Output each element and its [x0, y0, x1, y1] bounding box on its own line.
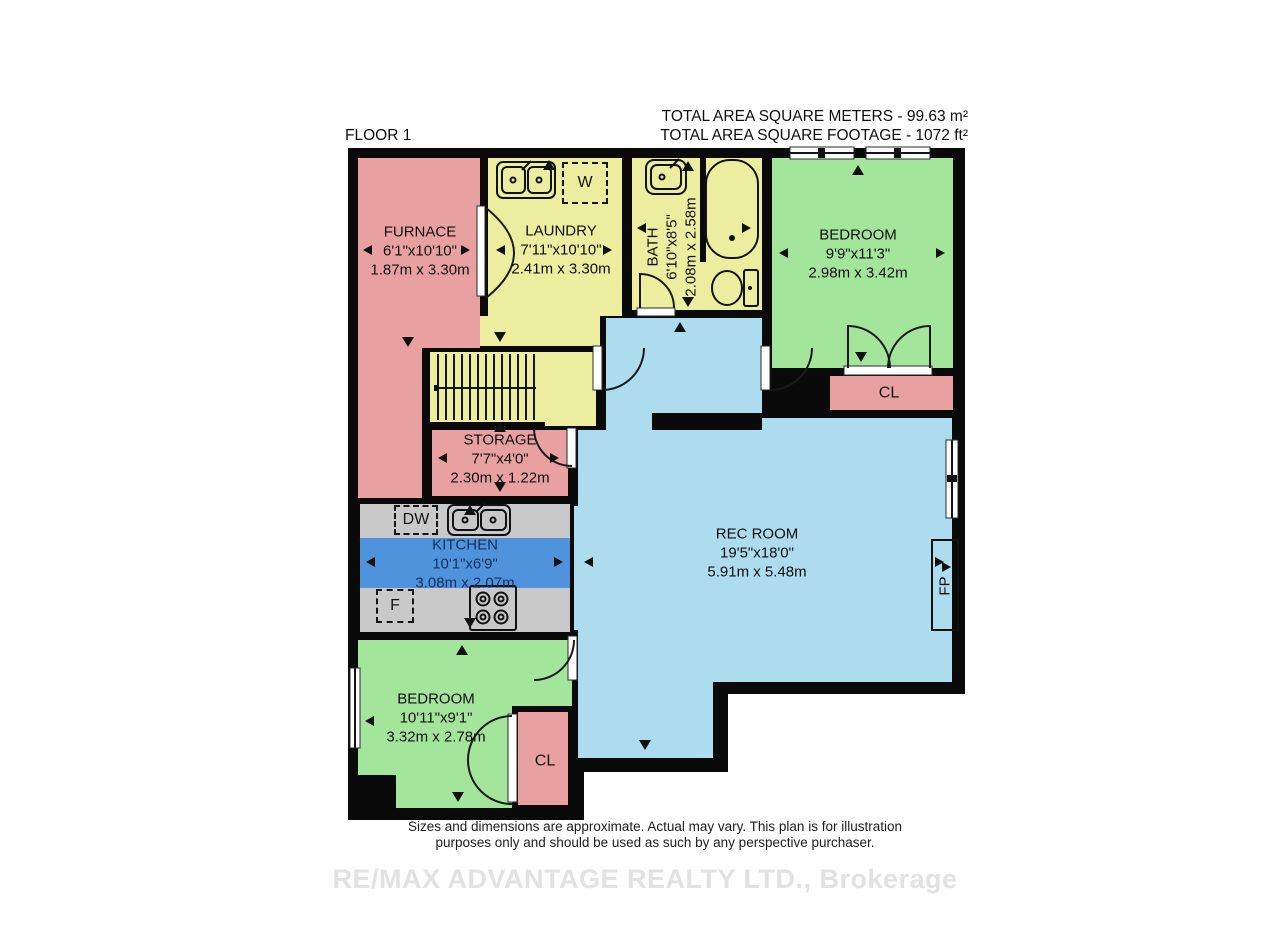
rec-room-dims-m: 5.91m x 5.48m	[707, 563, 806, 582]
bath-name: BATH	[644, 197, 663, 296]
disclaimer-line-1: Sizes and dimensions are approximate. Ac…	[355, 819, 955, 834]
rec-hall-door-leaf	[593, 346, 602, 390]
furnace-room-fill-lower	[358, 348, 422, 498]
furnace-dims-m: 1.87m x 3.30m	[370, 261, 469, 280]
furnace-name: FURNACE	[370, 223, 469, 242]
laundry-label: LAUNDRY 7'11"x10'10" 2.41m x 3.30m	[511, 222, 610, 279]
bedroom-upper-dims-m: 2.98m x 3.42m	[808, 264, 907, 283]
closet-upper-label: CL	[879, 384, 899, 403]
brokerage-watermark: RE/MAX ADVANTAGE REALTY LTD., Brokerage	[332, 864, 957, 895]
bath-threshold	[637, 308, 675, 316]
laundry-dims-m: 2.41m x 3.30m	[511, 260, 610, 279]
storage-dims-ft: 7'7"x4'0"	[450, 450, 549, 469]
kitchen-label: KITCHEN 10'1"x6'9" 3.08m x 2.07m	[415, 536, 514, 593]
bedroom-upper-door-leaf	[761, 346, 770, 390]
furnace-label: FURNACE 6'1"x10'10" 1.87m x 3.30m	[370, 223, 469, 280]
closet-lower-label: CL	[535, 752, 555, 771]
bedroom-upper-label: BEDROOM 9'9"x11'3" 2.98m x 3.42m	[808, 226, 907, 283]
furnace-door-leaf	[477, 206, 485, 296]
bath-dims-m: 2.08m x 2.58m	[682, 197, 701, 296]
storage-name: STORAGE	[450, 431, 549, 450]
floorplan-page: FLOOR 1 TOTAL AREA SQUARE METERS - 99.63…	[0, 0, 1280, 943]
rec-room-hall-fill	[606, 318, 762, 413]
bedroom-lower-notch	[358, 775, 396, 808]
stair-landing-fill	[480, 316, 600, 346]
rec-room-name: REC ROOM	[707, 525, 806, 544]
closet-lower-door-leaf	[508, 714, 517, 802]
bedroom-lower-dims-ft: 10'11"x9'1"	[386, 709, 485, 728]
furnace-dims-ft: 6'1"x10'10"	[370, 242, 469, 261]
laundry-name: LAUNDRY	[511, 222, 610, 241]
kitchen-dims-ft: 10'1"x6'9"	[415, 555, 514, 574]
bedroom-lower-name: BEDROOM	[386, 690, 485, 709]
bath-dims-ft: 6'10"x8'5"	[663, 197, 682, 296]
stair-landing-fill-2	[545, 352, 596, 426]
washer-box: W	[562, 162, 608, 204]
kitchen-dims-m: 3.08m x 2.07m	[415, 574, 514, 593]
kitchen-name: KITCHEN	[415, 536, 514, 555]
bedroom-upper-name: BEDROOM	[808, 226, 907, 245]
bedroom-lower-dims-m: 3.32m x 2.78m	[386, 728, 485, 747]
floorplan-drawing	[0, 0, 1280, 943]
disclaimer-line-2: purposes only and should be used as such…	[355, 835, 955, 850]
fridge-box: F	[376, 589, 414, 623]
storage-door-leaf	[567, 428, 576, 468]
laundry-dims-ft: 7'11"x10'10"	[511, 241, 610, 260]
rec-room-connector	[606, 413, 652, 430]
rec-room-label: REC ROOM 19'5"x18'0" 5.91m x 5.48m	[707, 525, 806, 582]
dishwasher-box: DW	[394, 505, 438, 535]
storage-dims-m: 2.30m x 1.22m	[450, 469, 549, 488]
bath-label: BATH 6'10"x8'5" 2.08m x 2.58m	[644, 197, 701, 296]
bedroom-upper-dims-ft: 9'9"x11'3"	[808, 245, 907, 264]
rec-room-dims-ft: 19'5"x18'0"	[707, 544, 806, 563]
storage-label: STORAGE 7'7"x4'0" 2.30m x 1.22m	[450, 431, 549, 488]
fireplace-label: FP	[936, 576, 955, 595]
bedroom-lower-label: BEDROOM 10'11"x9'1" 3.32m x 2.78m	[386, 690, 485, 747]
